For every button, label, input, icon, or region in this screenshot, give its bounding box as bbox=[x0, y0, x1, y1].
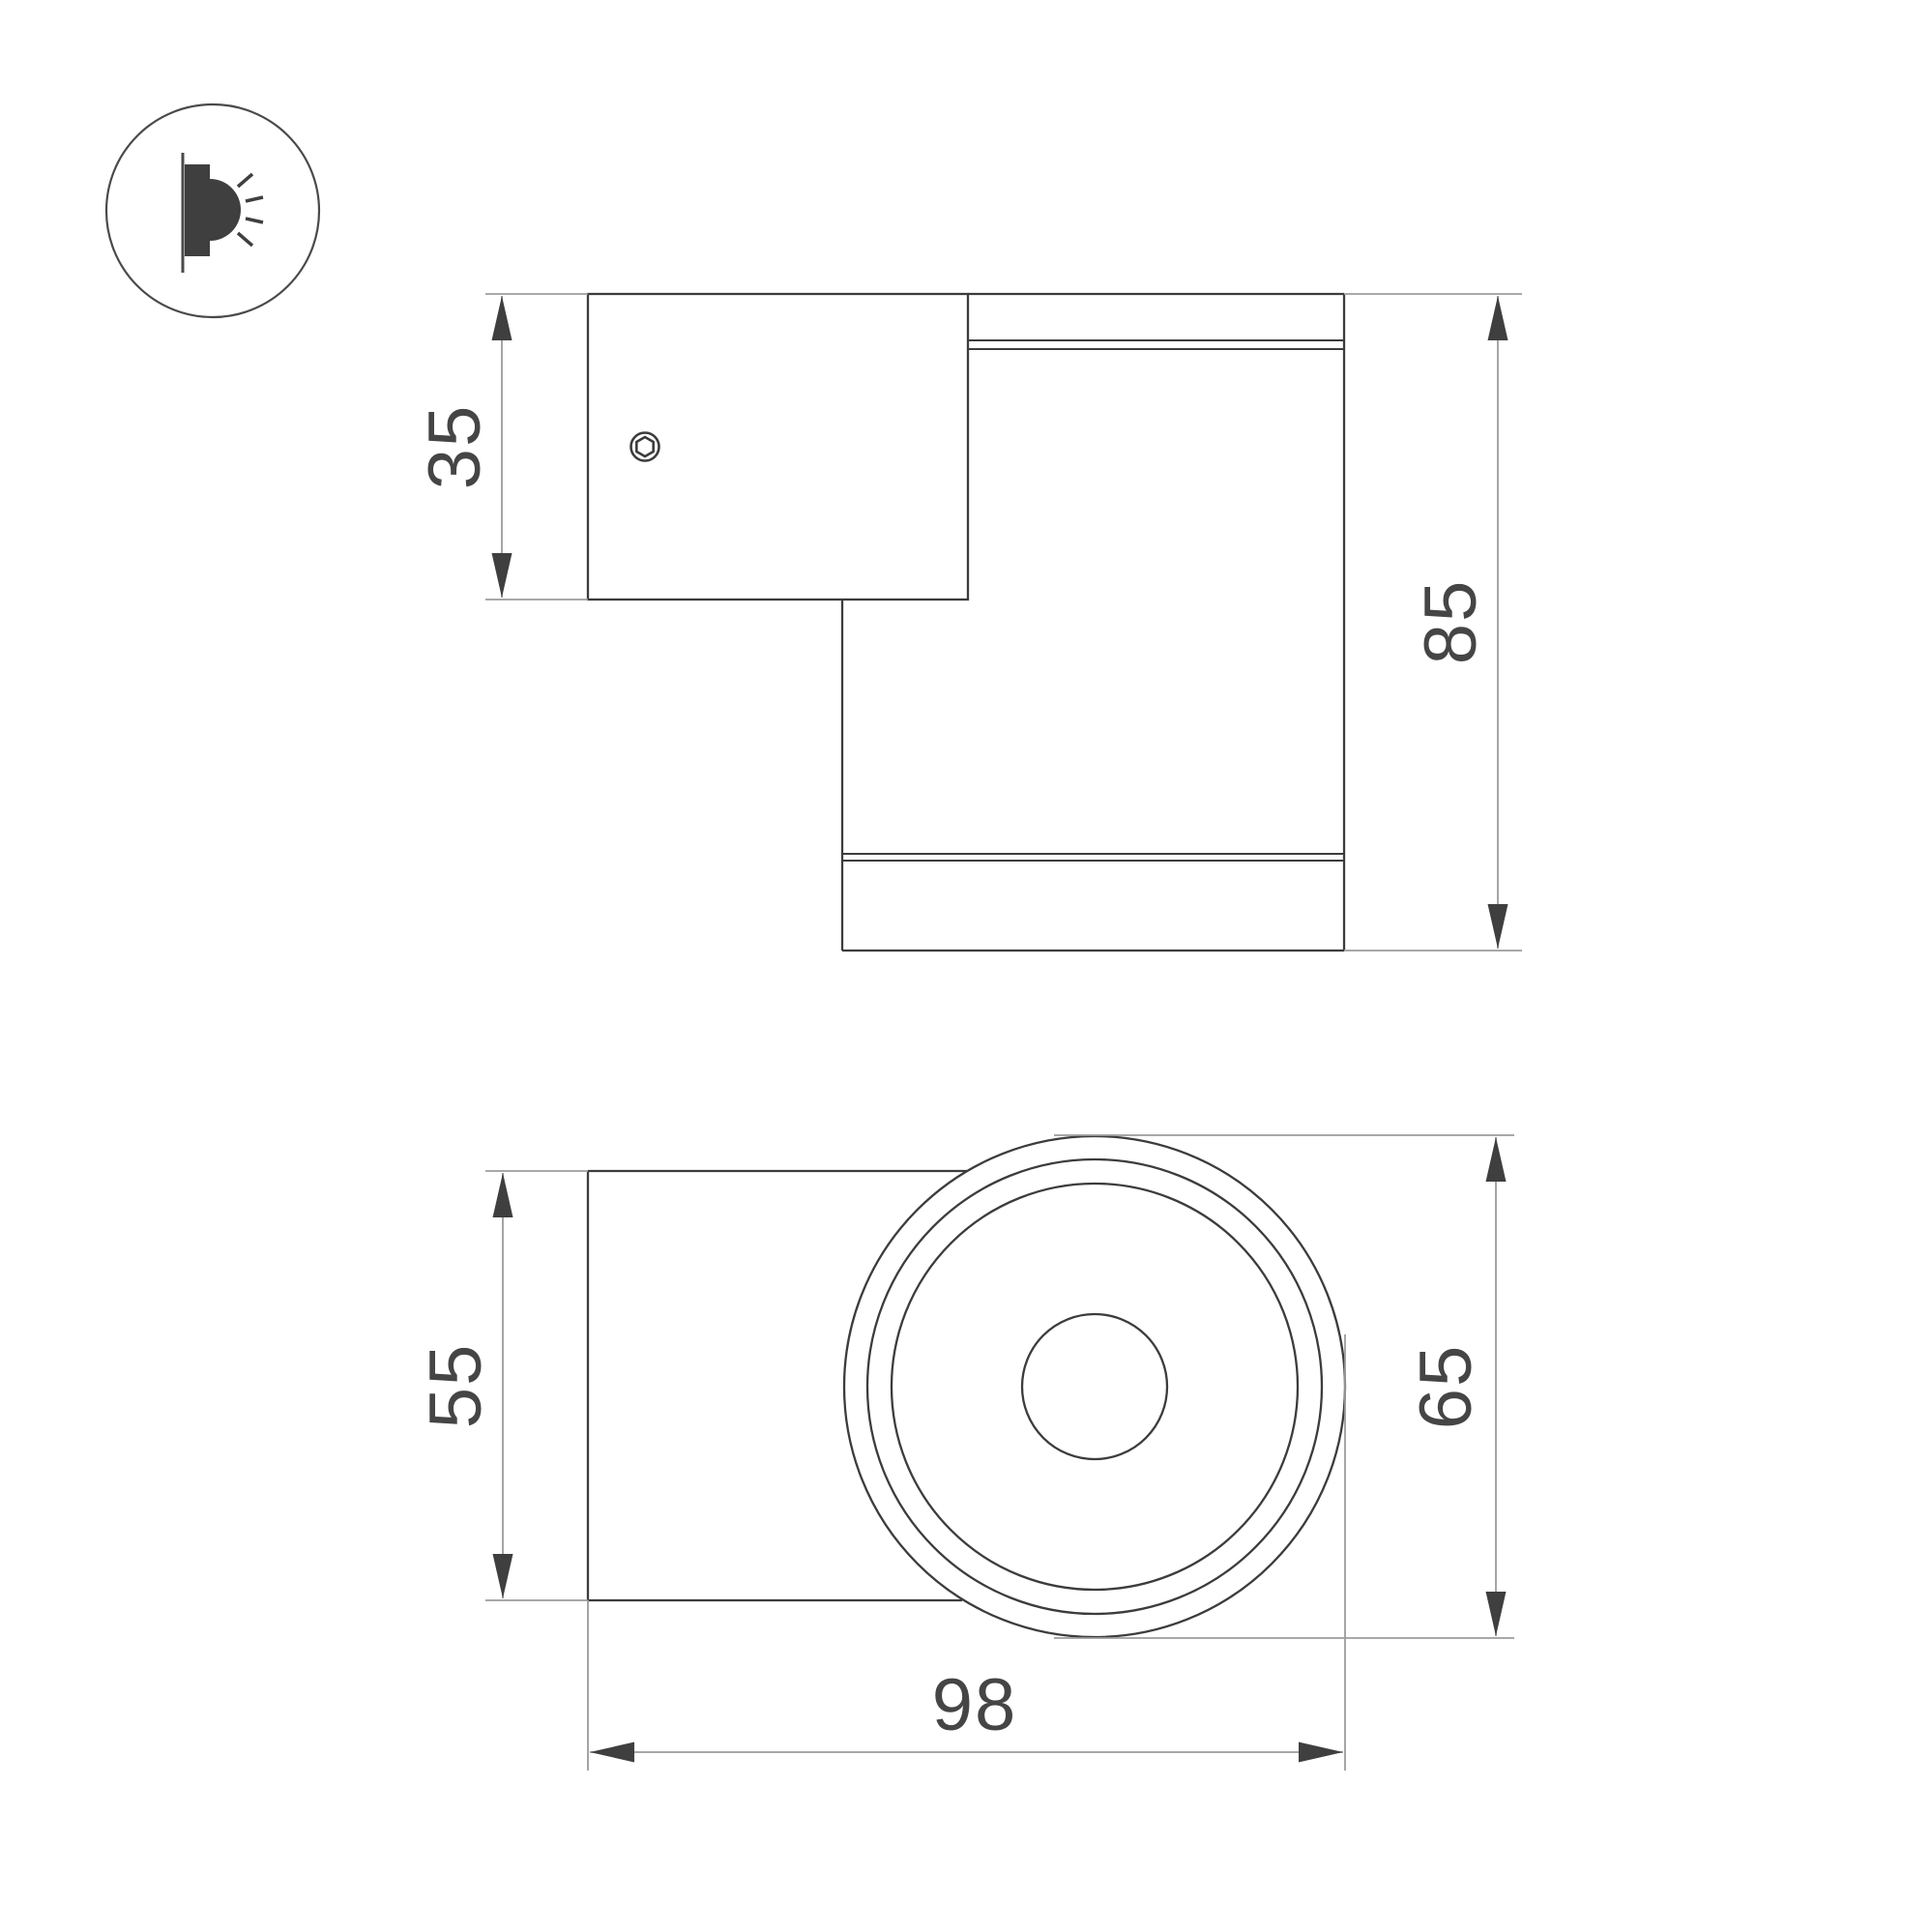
front-view-bezel-circle bbox=[867, 1159, 1322, 1614]
dim-label-overall-width: 98 bbox=[932, 1669, 1018, 1742]
side-view-mounting-box bbox=[588, 294, 968, 600]
dim35-arrow-down bbox=[492, 553, 512, 598]
icon-lamp-body bbox=[185, 164, 210, 256]
front-view bbox=[588, 1136, 1345, 1637]
front-view-outer-rim-circle bbox=[844, 1136, 1345, 1637]
dim98-arrow-right bbox=[1299, 1742, 1343, 1763]
dim65-arrow-up bbox=[1486, 1137, 1507, 1182]
dim35-arrow-up bbox=[492, 296, 512, 340]
dim65-arrow-down bbox=[1486, 1592, 1507, 1636]
dim-label-bracket-height: 35 bbox=[419, 404, 492, 490]
front-view-led-circle bbox=[1022, 1314, 1167, 1459]
icon-light-rays bbox=[238, 174, 263, 246]
technical-drawing-canvas bbox=[0, 0, 1932, 1932]
dim55-arrow-down bbox=[493, 1554, 513, 1598]
dim85-arrow-up bbox=[1488, 296, 1508, 340]
side-view bbox=[588, 294, 1344, 951]
dim-label-body-diameter: 65 bbox=[1410, 1344, 1483, 1430]
wall-lamp-side-emission-icon bbox=[106, 104, 319, 317]
dim85-arrow-down bbox=[1488, 904, 1508, 949]
front-view-glass-circle bbox=[892, 1184, 1298, 1590]
dimension-55 bbox=[485, 1171, 588, 1600]
dim-label-bracket-width: 55 bbox=[420, 1343, 493, 1429]
hex-screw-socket bbox=[636, 437, 653, 456]
dim55-arrow-up bbox=[493, 1173, 513, 1217]
dim98-arrow-left bbox=[590, 1742, 634, 1763]
hex-screw bbox=[631, 433, 659, 461]
dim-label-overall-height: 85 bbox=[1415, 579, 1488, 665]
dimension-drawing-page: 35 85 55 65 98 bbox=[0, 0, 1932, 1932]
dimension-35 bbox=[485, 294, 588, 600]
icon-light-halfdisc bbox=[210, 179, 241, 241]
